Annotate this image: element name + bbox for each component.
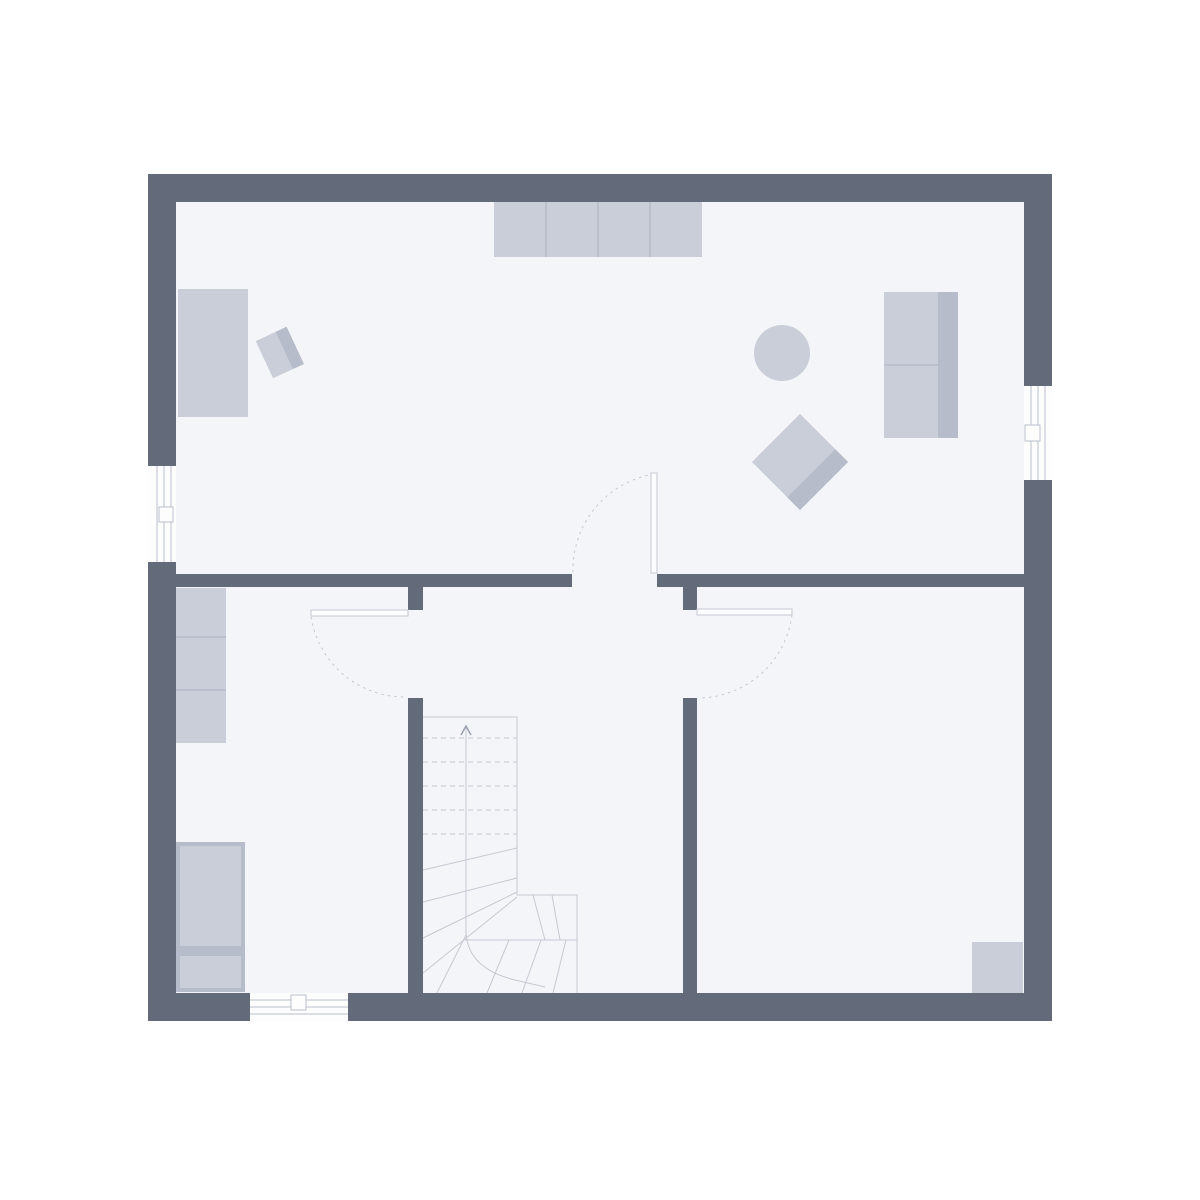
window-left-sash-symbol [159, 507, 173, 522]
floor-plan-canvas [0, 0, 1200, 1200]
window-bottom-sash-symbol [291, 995, 306, 1010]
door-leaf [697, 609, 792, 615]
wall-interior-horizontal-left [176, 574, 572, 587]
corner-unit [972, 942, 1023, 993]
wall-interior-right-lower [683, 698, 697, 993]
door-leaf [651, 473, 657, 573]
wardrobe-upper-section [180, 846, 241, 946]
sofa [884, 292, 958, 438]
shelf-cabinet [176, 588, 226, 743]
sofa-back [938, 292, 958, 438]
wall-interior-left-lower [408, 698, 423, 993]
wardrobe-lower-section [180, 956, 241, 988]
round-table [754, 325, 810, 381]
wall-interior-horizontal-right [657, 574, 1024, 587]
window-bottom-wall [250, 993, 348, 1021]
wall-interior-left-stub [408, 587, 423, 610]
door-leaf [311, 610, 408, 616]
wardrobe [176, 842, 245, 992]
wall-top [148, 174, 1052, 202]
wall-left [148, 174, 176, 1021]
window-left-wall [148, 466, 176, 562]
sideboard [494, 202, 702, 257]
wall-right [1024, 174, 1052, 1021]
window-right-sash-symbol [1025, 425, 1040, 441]
floor-plan [0, 0, 1200, 1200]
window-right-wall [1024, 386, 1052, 480]
desk [178, 289, 248, 417]
wall-interior-right-stub [683, 587, 697, 610]
shelf-cabinet-body [176, 588, 226, 743]
